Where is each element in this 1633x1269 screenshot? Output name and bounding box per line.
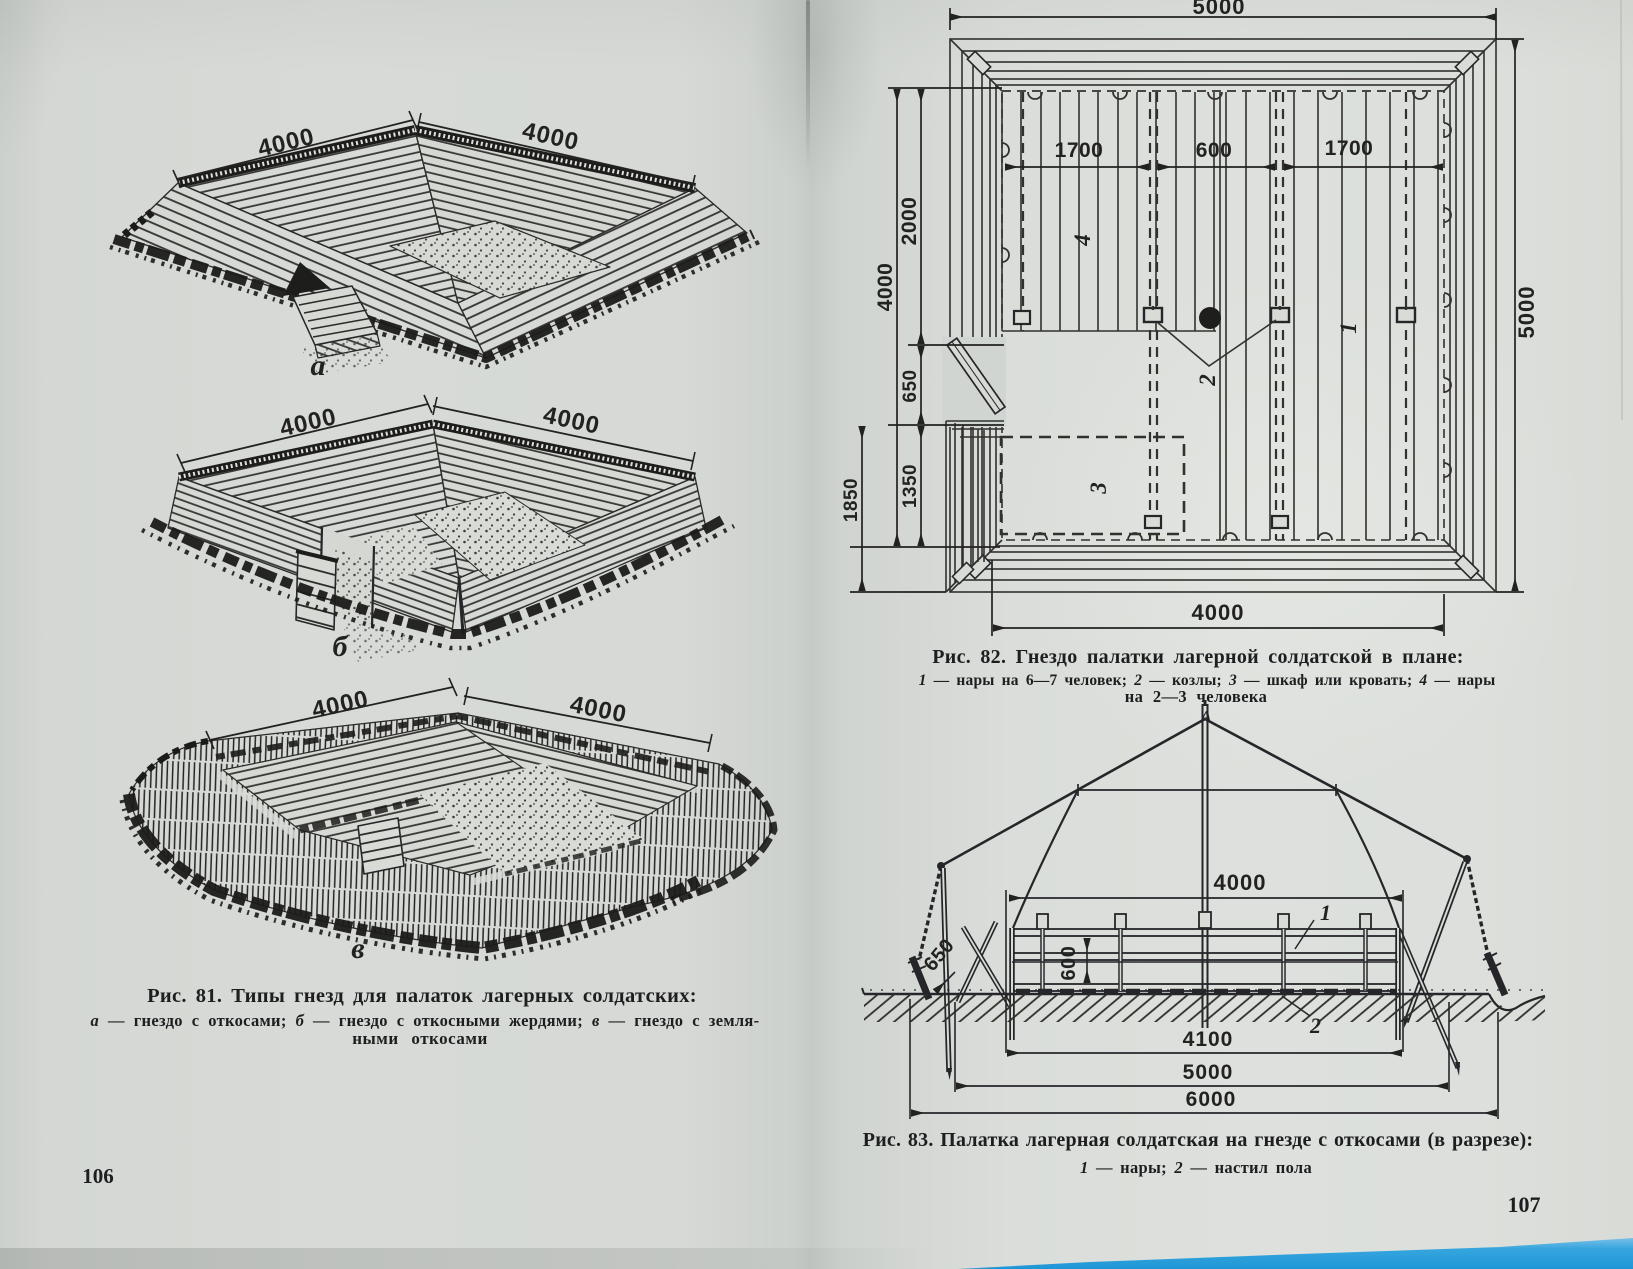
svg-text:5000: 5000 <box>1514 286 1539 339</box>
svg-text:а — гнездо с откосами; б — гне: а — гнездо с откосами; б — гнездо с отко… <box>91 1011 760 1030</box>
svg-text:5000: 5000 <box>1193 0 1246 19</box>
svg-text:2000: 2000 <box>898 197 921 246</box>
svg-text:1: 1 <box>1336 322 1361 334</box>
svg-text:4100: 4100 <box>1183 1028 1234 1051</box>
svg-text:2: 2 <box>1195 374 1220 387</box>
svg-text:4000: 4000 <box>1192 600 1245 625</box>
svg-text:4000: 4000 <box>568 691 629 728</box>
svg-text:б: б <box>333 630 349 663</box>
svg-text:Рис. 83. Палатка лагерная солд: Рис. 83. Палатка лагерная солдатская на … <box>863 1129 1533 1151</box>
svg-text:1 — нары; 2 — настил пола: 1 — нары; 2 — настил пола <box>1080 1158 1312 1177</box>
svg-text:107: 107 <box>1508 1192 1541 1217</box>
svg-text:2: 2 <box>1309 1013 1321 1038</box>
svg-text:a: a <box>311 349 326 382</box>
svg-text:Рис. 82. Гнездо палатки лагерн: Рис. 82. Гнездо палатки лагерной солдатс… <box>932 646 1464 668</box>
svg-text:А: А <box>1199 707 1211 726</box>
svg-text:106: 106 <box>82 1164 114 1188</box>
svg-text:1350: 1350 <box>900 464 921 508</box>
svg-text:4000: 4000 <box>277 403 339 442</box>
svg-text:1850: 1850 <box>841 478 862 522</box>
svg-text:600: 600 <box>1058 946 1080 981</box>
svg-text:650: 650 <box>920 935 959 976</box>
svg-text:4000: 4000 <box>1214 870 1267 895</box>
svg-text:на 2—3 человека: на 2—3 человека <box>1125 687 1267 706</box>
svg-text:5000: 5000 <box>1183 1061 1234 1084</box>
svg-text:4000: 4000 <box>541 401 603 439</box>
svg-text:3: 3 <box>1086 482 1111 495</box>
svg-text:1700: 1700 <box>1055 139 1104 162</box>
svg-text:650: 650 <box>900 369 921 402</box>
svg-text:1: 1 <box>1320 900 1331 925</box>
svg-text:6000: 6000 <box>1186 1088 1237 1111</box>
svg-text:ными откосами: ными откосами <box>352 1029 488 1048</box>
svg-text:4: 4 <box>1070 234 1095 247</box>
svg-text:Рис. 81. Типы гнезд для палато: Рис. 81. Типы гнезд для палаток лагерных… <box>147 985 697 1007</box>
svg-text:4000: 4000 <box>309 685 371 724</box>
svg-text:в: в <box>351 932 364 965</box>
svg-text:1700: 1700 <box>1325 137 1374 160</box>
svg-text:4000: 4000 <box>874 263 897 312</box>
svg-text:600: 600 <box>1196 139 1233 162</box>
